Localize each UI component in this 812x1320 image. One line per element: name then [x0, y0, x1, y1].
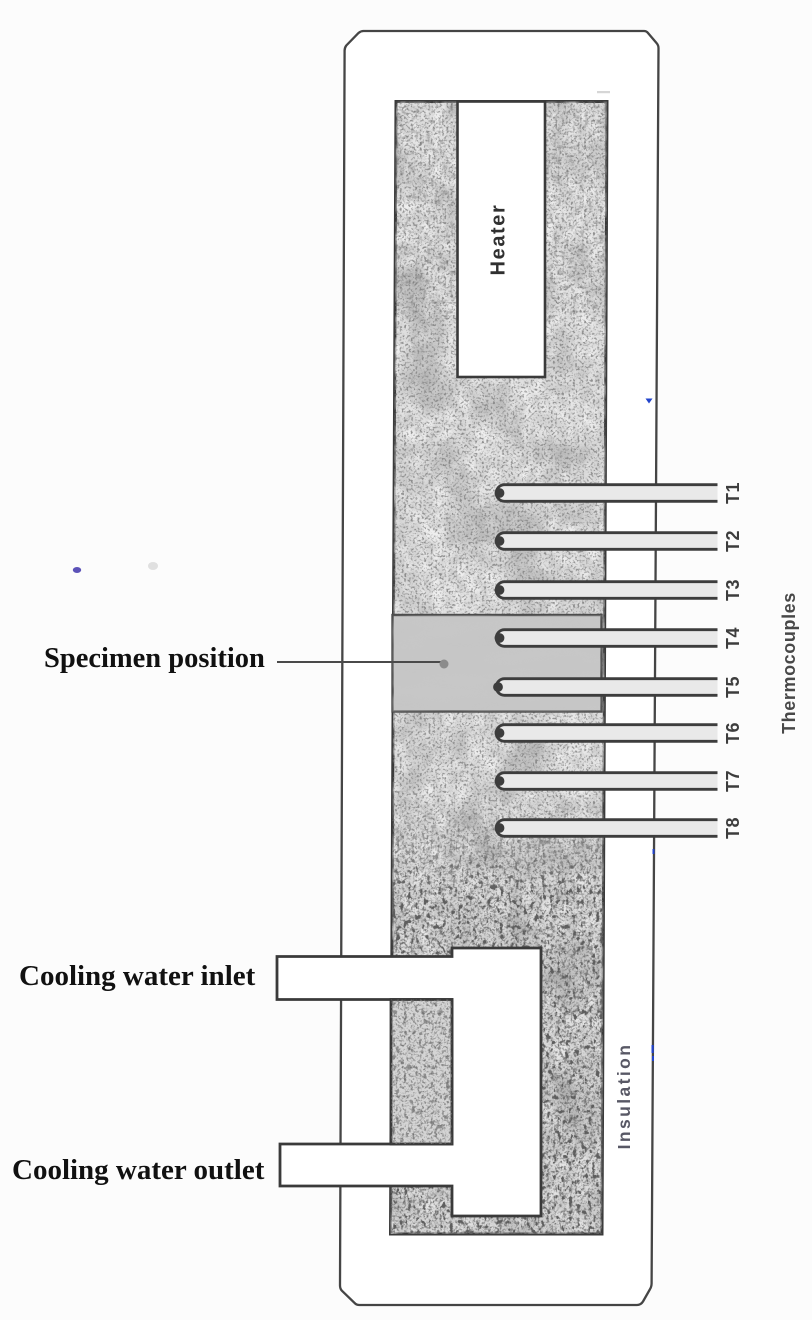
svg-text:Heater: Heater [487, 204, 509, 276]
svg-text:T4: T4 [723, 627, 743, 649]
svg-text:T6: T6 [723, 722, 743, 744]
svg-text:T5: T5 [723, 676, 743, 698]
svg-text:T3: T3 [723, 579, 743, 601]
svg-text:T1: T1 [723, 482, 743, 504]
svg-text:Thermocouples: Thermocouples [779, 592, 799, 734]
svg-text:Insulation: Insulation [614, 1043, 634, 1150]
svg-text:T8: T8 [723, 817, 743, 839]
svg-text:Cooling water outlet: Cooling water outlet [12, 1154, 265, 1186]
svg-text:T2: T2 [723, 530, 743, 552]
svg-text:Cooling water inlet: Cooling water inlet [19, 960, 256, 992]
svg-text:T7: T7 [723, 770, 743, 792]
svg-text:Specimen position: Specimen position [44, 643, 265, 674]
